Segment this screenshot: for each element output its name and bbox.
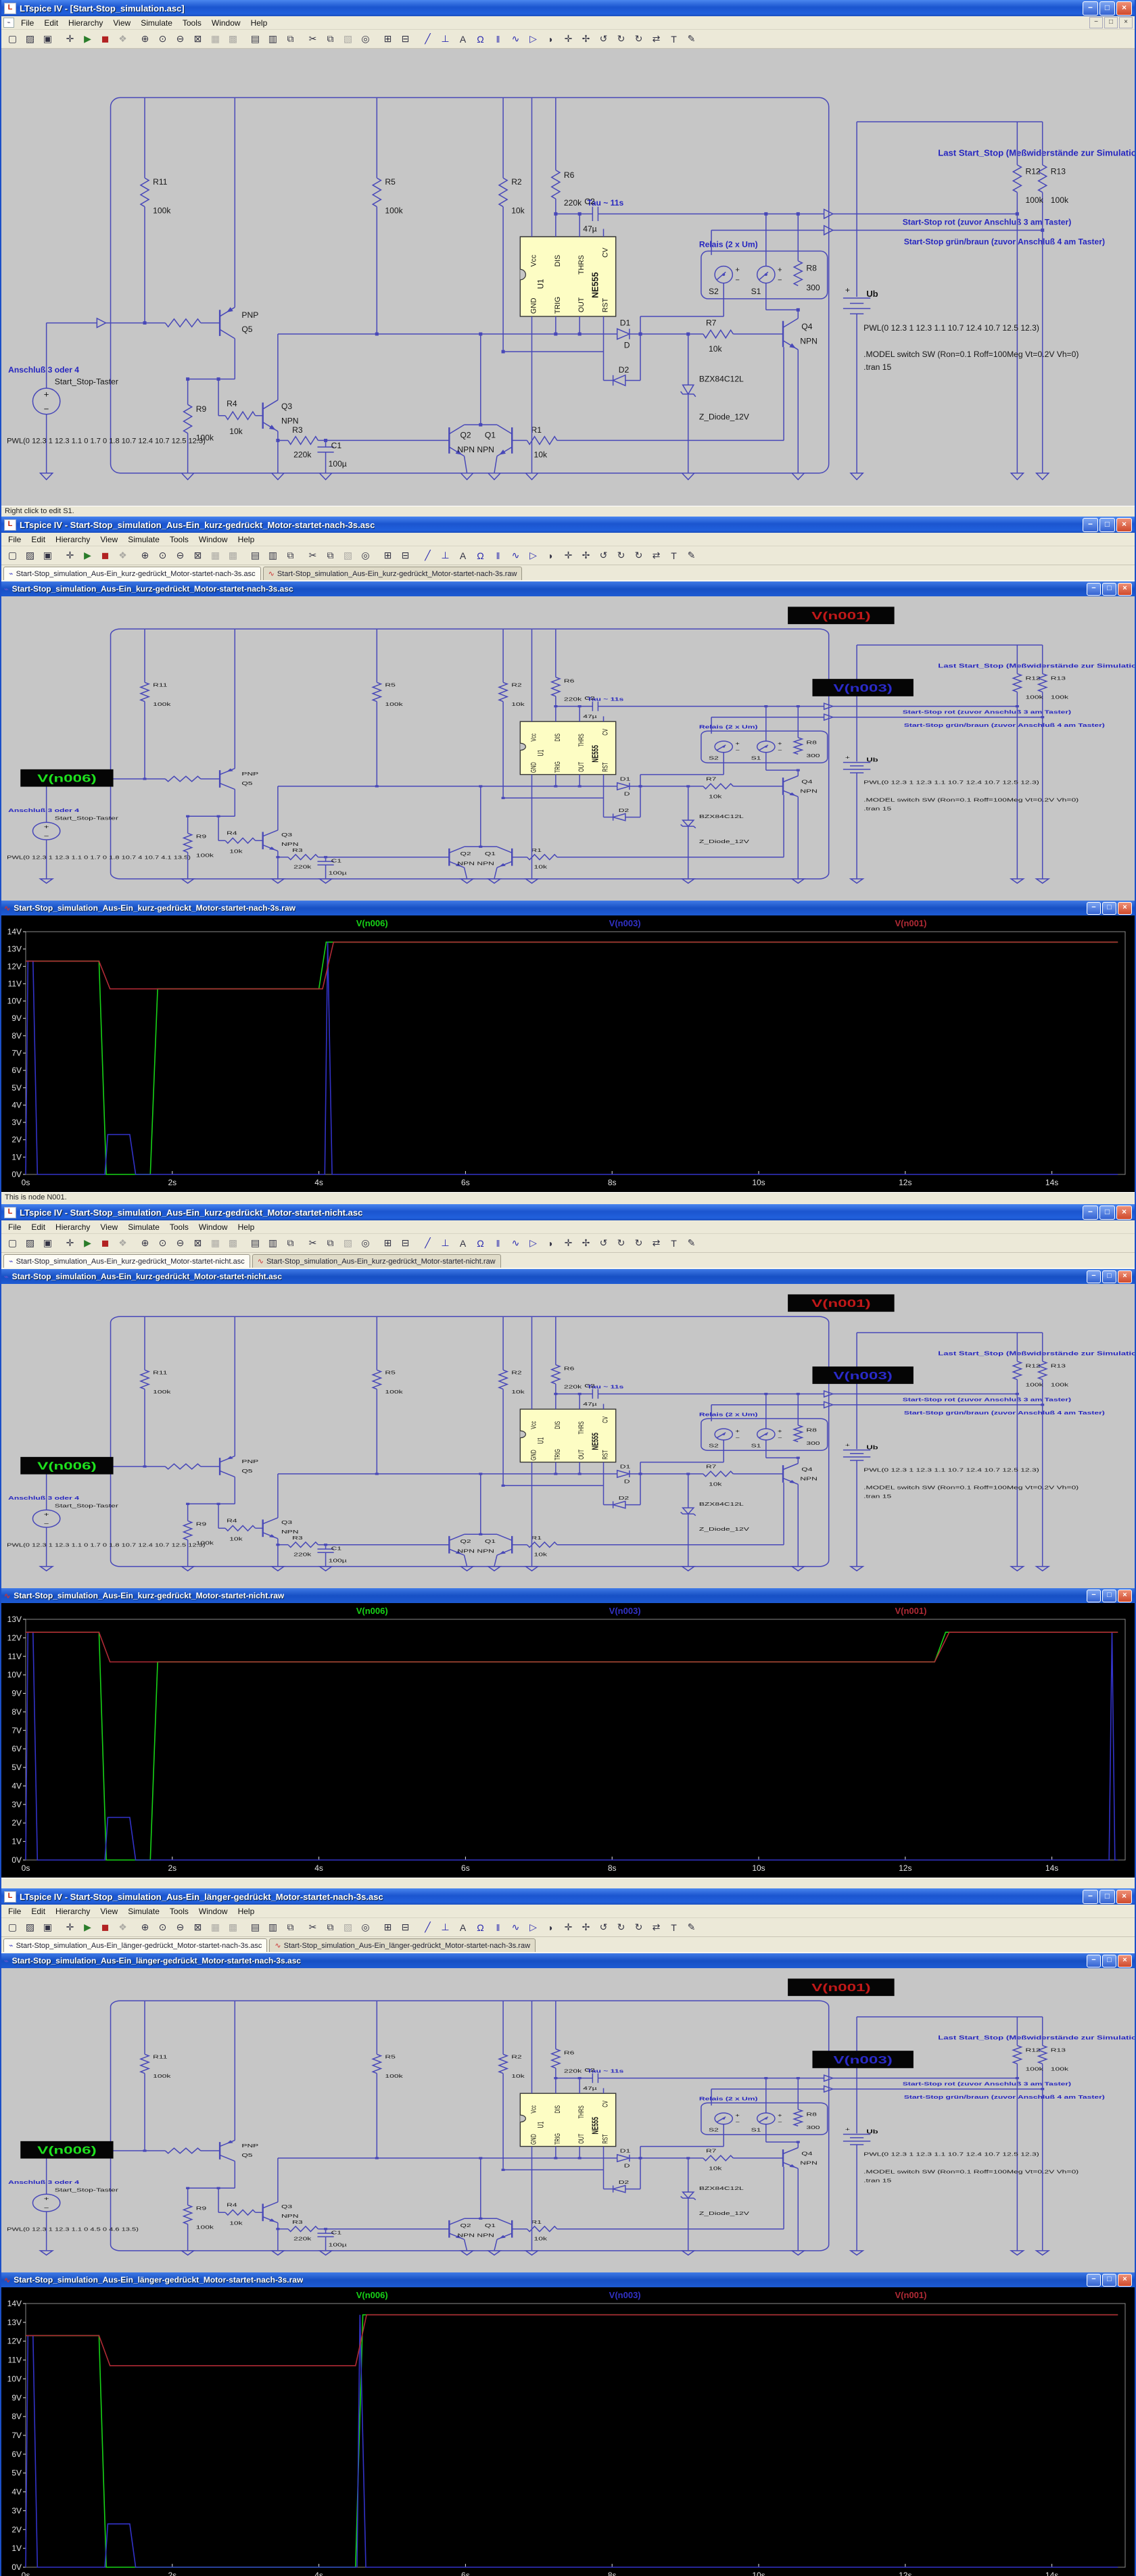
toolbar-tile-vertical-icon[interactable]: ▥	[264, 1919, 281, 1936]
svg-text:C2: C2	[584, 696, 595, 701]
minimize-button[interactable]: −	[1087, 1270, 1101, 1283]
menu-item-window[interactable]: Window	[194, 1221, 233, 1233]
maximize-button[interactable]: □	[1102, 1590, 1116, 1602]
waveform-file-icon: ∿	[4, 904, 10, 913]
toolbar-cascade-icon[interactable]: ⧉	[282, 547, 299, 564]
svg-text:Z_Diode_12V: Z_Diode_12V	[699, 2211, 749, 2216]
toolbar-inductor-icon[interactable]: ∿	[507, 1919, 524, 1936]
waveform-plot[interactable]: 0V1V2V3V4V5V6V7V8V9V10V11V12V13V0s2s4s6s…	[1, 1603, 1135, 1878]
toolbar-halt-icon[interactable]: ◼	[97, 1919, 114, 1936]
toolbar-capacitor-icon[interactable]: ‖	[490, 547, 506, 564]
toolbar-edit-icon[interactable]: ✎	[683, 547, 700, 564]
toolbar-open-icon[interactable]: ▨	[22, 547, 39, 564]
toolbar-tile-vertical-icon[interactable]: ▥	[264, 1235, 281, 1251]
toolbar-capacitor-icon[interactable]: ‖	[490, 1919, 506, 1936]
toolbar-halt-icon[interactable]: ◼	[97, 547, 114, 564]
titlebar-laenger-3s[interactable]: L LTspice IV - Start-Stop_simulation_Aus…	[1, 1888, 1135, 1905]
toolbar-capacitor-icon[interactable]: ‖	[490, 1235, 506, 1251]
menu-item-tools[interactable]: Tools	[165, 1905, 193, 1917]
close-button[interactable]: ×	[1116, 1206, 1132, 1220]
tab-asc[interactable]: ⌁Start-Stop_simulation_Aus-Ein_kurz-gedr…	[3, 567, 261, 580]
toolbar-halt-icon[interactable]: ◼	[97, 1235, 114, 1251]
svg-text:R3: R3	[292, 425, 303, 435]
toolbar-edit-icon[interactable]: ✎	[683, 1919, 700, 1936]
minimize-button[interactable]: −	[1083, 1890, 1098, 1904]
toolbar-wire-icon[interactable]: ╱	[419, 1235, 436, 1251]
toolbar-run-icon[interactable]: ▶	[79, 30, 96, 47]
window-main: L LTspice IV - [Start-Stop_simulation.as…	[0, 0, 1136, 517]
minimize-button[interactable]: −	[1087, 583, 1101, 596]
menu-item-file[interactable]: File	[3, 1221, 26, 1233]
toolbar-tile-horizontal-icon[interactable]: ▤	[247, 1235, 264, 1251]
toolbar-net-label-icon[interactable]: A	[454, 547, 471, 564]
svg-text:Q4: Q4	[801, 779, 813, 784]
toolbar-drag-icon[interactable]: ✢	[577, 1919, 594, 1936]
legend-V(n006)[interactable]: V(n006)	[356, 918, 388, 928]
menu-item-view[interactable]: View	[95, 533, 122, 546]
close-button[interactable]: ×	[1118, 902, 1132, 915]
close-button[interactable]: ×	[1116, 1, 1132, 16]
toolbar-mirror-icon[interactable]: ⇄	[648, 1919, 665, 1936]
tab-raw[interactable]: ∿Start-Stop_simulation_Aus-Ein_länger-ge…	[269, 1938, 536, 1952]
window-controls: −□×	[1087, 1955, 1132, 1967]
toolbar-control-panel-icon[interactable]: ✛	[62, 30, 78, 47]
menu-item-file[interactable]: File	[3, 533, 26, 546]
toolbar-text-icon[interactable]: T	[665, 1235, 682, 1251]
maximize-button[interactable]: □	[1102, 1955, 1116, 1967]
svg-text:10k: 10k	[709, 2166, 723, 2171]
toolbar-grid-dots-icon[interactable]: ▦	[207, 30, 224, 47]
toolbar-component-icon[interactable]: ◗	[542, 1235, 559, 1251]
window-title: LTspice IV - Start-Stop_simulation_Aus-E…	[20, 1208, 362, 1218]
svg-text:D1: D1	[620, 318, 631, 328]
toolbar-save-icon[interactable]: ▣	[39, 1919, 56, 1936]
legend-V(n003)[interactable]: V(n003)	[609, 1606, 641, 1616]
toolbar-wire-icon[interactable]: ╱	[419, 30, 436, 47]
menu-item-hierarchy[interactable]: Hierarchy	[64, 17, 108, 29]
toolbar-mirror-icon[interactable]: ⇄	[648, 547, 665, 564]
toolbar-run-icon[interactable]: ▶	[79, 1919, 96, 1936]
svg-text:14V: 14V	[7, 2299, 22, 2308]
toolbar-mark-unconnected-icon[interactable]: ▩	[224, 30, 241, 47]
svg-text:C1: C1	[331, 858, 342, 863]
close-button[interactable]: ×	[1118, 583, 1132, 596]
toolbar-copy-icon[interactable]: ⧉	[322, 30, 339, 47]
toolbar-zoom-back-icon[interactable]: ⊙	[154, 547, 171, 564]
toolbar-net-label-icon[interactable]: A	[454, 1919, 471, 1936]
toolbar-zoom-back-icon[interactable]: ⊙	[154, 1919, 171, 1936]
svg-text:13V: 13V	[7, 2318, 22, 2327]
toolbar-rotate-icon[interactable]: ↻	[630, 1919, 647, 1936]
toolbar-component-icon[interactable]: ◗	[542, 30, 559, 47]
toolbar-zoom-out-icon[interactable]: ⊖	[172, 1235, 189, 1251]
maximize-button[interactable]: □	[1099, 518, 1115, 532]
maximize-button[interactable]: □	[1099, 1890, 1115, 1904]
toolbar-text-icon[interactable]: T	[665, 547, 682, 564]
toolbar-ground-icon[interactable]: ⊥	[437, 547, 454, 564]
toolbar-component-icon[interactable]: ◗	[542, 1919, 559, 1936]
schematic-file-icon: ⌁	[9, 1257, 14, 1266]
toolbar-pan-icon[interactable]: ❖	[114, 30, 131, 47]
toolbar-diode-icon[interactable]: ▷	[525, 1919, 542, 1936]
toolbar-new-schematic-icon[interactable]: ▢	[4, 1919, 21, 1936]
toolbar-mirror-icon[interactable]: ⇄	[648, 1235, 665, 1251]
close-button[interactable]: ×	[1118, 2274, 1132, 2287]
minimize-button[interactable]: −	[1087, 2274, 1101, 2287]
svg-text:Q4: Q4	[801, 323, 813, 332]
toolbar-move-icon[interactable]: ✛	[560, 1919, 577, 1936]
tab-label: Start-Stop_simulation_Aus-Ein_kurz-gedrü…	[16, 1258, 245, 1266]
svg-text:14s: 14s	[1045, 2571, 1058, 2576]
toolbar-print-icon[interactable]: ⊟	[397, 547, 414, 564]
menu-item-tools[interactable]: Tools	[165, 533, 193, 546]
toolbar-save-icon[interactable]: ▣	[39, 547, 56, 564]
menu-item-hierarchy[interactable]: Hierarchy	[51, 1221, 95, 1233]
close-button[interactable]: ×	[1118, 1955, 1132, 1967]
close-button[interactable]: ×	[1116, 1890, 1132, 1904]
toolbar-wire-icon[interactable]: ╱	[419, 547, 436, 564]
toolbar-print-icon[interactable]: ⊟	[397, 1235, 414, 1251]
toolbar-print-preview-icon[interactable]: ⊞	[379, 1235, 396, 1251]
svg-text:+: +	[44, 824, 49, 830]
toolbar-paste-icon[interactable]: ▧	[339, 547, 356, 564]
toolbar-zoom-in-icon[interactable]: ⊕	[137, 1235, 153, 1251]
maximize-button[interactable]: □	[1099, 1206, 1115, 1220]
toolbar-pan-icon[interactable]: ❖	[114, 1919, 131, 1936]
toolbar-new-schematic-icon[interactable]: ▢	[4, 547, 21, 564]
legend-V(n006)[interactable]: V(n006)	[356, 2290, 388, 2300]
menu-item-hierarchy[interactable]: Hierarchy	[51, 533, 95, 546]
toolbar-zoom-out-icon[interactable]: ⊖	[172, 547, 189, 564]
toolbar-mark-unconnected-icon[interactable]: ▩	[224, 1235, 241, 1251]
toolbar-tile-horizontal-icon[interactable]: ▤	[247, 1919, 264, 1936]
toolbar-text-icon[interactable]: T	[665, 1919, 682, 1936]
toolbar-edit-icon[interactable]: ✎	[683, 30, 700, 47]
menu-item-help[interactable]: Help	[233, 1905, 260, 1917]
svg-text:R5: R5	[385, 683, 396, 688]
child-titlebar-schematic[interactable]: ⌁ Start-Stop_simulation_Aus-Ein_kurz-ged…	[1, 581, 1135, 596]
titlebar-kurz-nicht[interactable]: L LTspice IV - Start-Stop_simulation_Aus…	[1, 1204, 1135, 1220]
toolbar-cascade-icon[interactable]: ⧉	[282, 1235, 299, 1251]
toolbar-cut-icon[interactable]: ✂	[304, 1919, 321, 1936]
svg-text:CV: CV	[601, 728, 609, 735]
toolbar-halt-icon[interactable]: ◼	[97, 30, 114, 47]
menu-item-simulate[interactable]: Simulate	[123, 533, 164, 546]
toolbar-find-icon[interactable]: ◎	[357, 1235, 374, 1251]
svg-text:TRIG: TRIG	[553, 761, 561, 773]
legend-V(n003)[interactable]: V(n003)	[609, 2290, 641, 2300]
svg-text:9V: 9V	[11, 1013, 22, 1023]
toolbar-zoom-full-extents-icon[interactable]: ⊠	[189, 547, 206, 564]
toolbar-zoom-full-extents-icon[interactable]: ⊠	[189, 1235, 206, 1251]
toolbar-tile-horizontal-icon[interactable]: ▤	[247, 547, 264, 564]
minimize-button[interactable]: −	[1087, 1955, 1101, 1967]
tab-raw[interactable]: ∿Start-Stop_simulation_Aus-Ein_kurz-gedr…	[263, 567, 523, 580]
toolbar-control-panel-icon[interactable]: ✛	[62, 547, 78, 564]
toolbar-zoom-full-extents-icon[interactable]: ⊠	[189, 1919, 206, 1936]
close-button[interactable]: ×	[1118, 1270, 1132, 1283]
toolbar-mirror-icon[interactable]: ⇄	[648, 30, 665, 47]
toolbar-pan-icon[interactable]: ❖	[114, 1235, 131, 1251]
toolbar-print-preview-icon[interactable]: ⊞	[379, 547, 396, 564]
child-close-button[interactable]: ×	[1119, 17, 1133, 28]
menu-item-simulate[interactable]: Simulate	[123, 1905, 164, 1917]
svg-text:C2: C2	[584, 2068, 595, 2073]
legend-V(n001)[interactable]: V(n001)	[895, 1606, 926, 1616]
minimize-button[interactable]: −	[1083, 1, 1098, 16]
menu-item-simulate[interactable]: Simulate	[123, 1221, 164, 1233]
toolbar-inductor-icon[interactable]: ∿	[507, 30, 524, 47]
legend-V(n001)[interactable]: V(n001)	[895, 918, 926, 928]
toolbar-redo-icon[interactable]: ↻	[613, 30, 630, 47]
schematic-canvas[interactable]: +−Anschluß 3 oder 4Start_Stop-TasterPWL(…	[1, 596, 1135, 901]
toolbar-resistor-icon[interactable]: Ω	[472, 547, 489, 564]
child-titlebar-waveform[interactable]: ∿ Start-Stop_simulation_Aus-Ein_kurz-ged…	[1, 901, 1135, 915]
toolbar-capacitor-icon[interactable]: ‖	[490, 30, 506, 47]
svg-text:Q5: Q5	[241, 325, 253, 334]
menu-item-view[interactable]: View	[95, 1221, 122, 1233]
tab-asc[interactable]: ⌁Start-Stop_simulation_Aus-Ein_kurz-gedr…	[3, 1254, 250, 1268]
titlebar-main[interactable]: L LTspice IV - [Start-Stop_simulation.as…	[1, 0, 1135, 16]
menu-item-file[interactable]: File	[3, 1905, 26, 1917]
tab-asc[interactable]: ⌁Start-Stop_simulation_Aus-Ein_länger-ge…	[3, 1938, 267, 1952]
toolbar-ground-icon[interactable]: ⊥	[437, 1919, 454, 1936]
waveform-plot[interactable]: 0V1V2V3V4V5V6V7V8V9V10V11V12V13V14V0s2s4…	[1, 2287, 1135, 2576]
toolbar-cascade-icon[interactable]: ⧉	[282, 30, 299, 47]
ltspice-app-icon: L	[4, 3, 16, 14]
menu-item-simulate[interactable]: Simulate	[136, 17, 177, 29]
menu-item-window[interactable]: Window	[207, 17, 245, 29]
menu-item-window[interactable]: Window	[194, 1905, 233, 1917]
toolbar-tile-vertical-icon[interactable]: ▥	[264, 547, 281, 564]
svg-text:8V: 8V	[11, 2412, 22, 2421]
tab-raw[interactable]: ∿Start-Stop_simulation_Aus-Ein_kurz-gedr…	[252, 1254, 501, 1268]
toolbar-drag-icon[interactable]: ✢	[577, 547, 594, 564]
toolbar-paste-icon[interactable]: ▧	[339, 30, 356, 47]
toolbar-diode-icon[interactable]: ▷	[525, 547, 542, 564]
toolbar-inductor-icon[interactable]: ∿	[507, 547, 524, 564]
toolbar-copy-icon[interactable]: ⧉	[322, 547, 339, 564]
toolbar-zoom-full-extents-icon[interactable]: ⊠	[189, 30, 206, 47]
child-minimize-button[interactable]: −	[1089, 17, 1103, 28]
legend-V(n003)[interactable]: V(n003)	[609, 918, 641, 928]
toolbar-paste-icon[interactable]: ▧	[339, 1235, 356, 1251]
toolbar-print-preview-icon[interactable]: ⊞	[379, 30, 396, 47]
toolbar-copy-icon[interactable]: ⧉	[322, 1235, 339, 1251]
toolbar-paste-icon[interactable]: ▧	[339, 1919, 356, 1936]
toolbar-mark-unconnected-icon[interactable]: ▩	[224, 547, 241, 564]
toolbar-undo-icon[interactable]: ↺	[595, 1919, 612, 1936]
svg-text:3V: 3V	[11, 1118, 22, 1127]
toolbar-redo-icon[interactable]: ↻	[613, 547, 630, 564]
toolbar-text-icon[interactable]: T	[665, 30, 682, 47]
toolbar-ground-icon[interactable]: ⊥	[437, 1235, 454, 1251]
toolbar-pan-icon[interactable]: ❖	[114, 547, 131, 564]
toolbar-find-icon[interactable]: ◎	[357, 547, 374, 564]
toolbar-zoom-back-icon[interactable]: ⊙	[154, 1235, 171, 1251]
toolbar-save-icon[interactable]: ▣	[39, 1235, 56, 1251]
svg-text:NPN: NPN	[800, 788, 818, 794]
toolbar-zoom-in-icon[interactable]: ⊕	[137, 30, 153, 47]
minimize-button[interactable]: −	[1083, 518, 1098, 532]
toolbar-redo-icon[interactable]: ↻	[613, 1919, 630, 1936]
svg-text:47µ: 47µ	[583, 1402, 597, 1407]
toolbar: ▢▨▣✛▶◼❖⊕⊙⊖⊠▦▩▤▥⧉✂⧉▧◎⊞⊟╱⊥AΩ‖∿▷◗✛✢↺↻↻⇄T✎	[1, 1234, 1135, 1253]
toolbar-new-schematic-icon[interactable]: ▢	[4, 1235, 21, 1251]
toolbar-move-icon[interactable]: ✛	[560, 30, 577, 47]
toolbar-run-icon[interactable]: ▶	[79, 547, 96, 564]
menu-item-help[interactable]: Help	[233, 1221, 260, 1233]
toolbar-wire-icon[interactable]: ╱	[419, 1919, 436, 1936]
maximize-button[interactable]: □	[1102, 1270, 1116, 1283]
toolbar-rotate-icon[interactable]: ↻	[630, 1235, 647, 1251]
toolbar-component-icon[interactable]: ◗	[542, 547, 559, 564]
toolbar-cascade-icon[interactable]: ⧉	[282, 1919, 299, 1936]
menu-item-edit[interactable]: Edit	[26, 1905, 50, 1917]
legend-V(n006)[interactable]: V(n006)	[356, 1606, 388, 1616]
minimize-button[interactable]: −	[1087, 1590, 1101, 1602]
toolbar-cut-icon[interactable]: ✂	[304, 30, 321, 47]
legend-V(n001)[interactable]: V(n001)	[895, 2290, 926, 2300]
toolbar-zoom-in-icon[interactable]: ⊕	[137, 547, 153, 564]
child-titlebar-waveform[interactable]: ∿ Start-Stop_simulation_Aus-Ein_kurz-ged…	[1, 1588, 1135, 1603]
toolbar-cut-icon[interactable]: ✂	[304, 547, 321, 564]
toolbar-find-icon[interactable]: ◎	[357, 1919, 374, 1936]
menu-item-file[interactable]: File	[16, 17, 39, 29]
toolbar-tile-horizontal-icon[interactable]: ▤	[247, 30, 264, 47]
toolbar-resistor-icon[interactable]: Ω	[472, 1235, 489, 1251]
menu-item-view[interactable]: View	[95, 1905, 122, 1917]
toolbar-print-icon[interactable]: ⊟	[397, 1919, 414, 1936]
toolbar-zoom-in-icon[interactable]: ⊕	[137, 1919, 153, 1936]
svg-text:C1: C1	[331, 1546, 342, 1551]
toolbar-move-icon[interactable]: ✛	[560, 547, 577, 564]
toolbar-redo-icon[interactable]: ↻	[613, 1235, 630, 1251]
svg-text:5V: 5V	[11, 1083, 22, 1093]
svg-text:Vcc: Vcc	[529, 254, 538, 266]
toolbar-tile-vertical-icon[interactable]: ▥	[264, 30, 281, 47]
minimize-button[interactable]: −	[1087, 902, 1101, 915]
close-button[interactable]: ×	[1118, 1590, 1132, 1602]
maximize-button[interactable]: □	[1102, 2274, 1116, 2287]
svg-text:Q1: Q1	[485, 2223, 496, 2228]
toolbar-new-schematic-icon[interactable]: ▢	[4, 30, 21, 47]
toolbar-grid-dots-icon[interactable]: ▦	[207, 1235, 224, 1251]
toolbar-edit-icon[interactable]: ✎	[683, 1235, 700, 1251]
toolbar-rotate-icon[interactable]: ↻	[630, 547, 647, 564]
svg-text:D1: D1	[620, 2148, 631, 2153]
toolbar-open-icon[interactable]: ▨	[22, 30, 39, 47]
toolbar-open-icon[interactable]: ▨	[22, 1235, 39, 1251]
waveform-plot[interactable]: 0V1V2V3V4V5V6V7V8V9V10V11V12V13V14V0s2s4…	[1, 915, 1135, 1192]
toolbar-open-icon[interactable]: ▨	[22, 1919, 39, 1936]
svg-text:Q3: Q3	[281, 2204, 293, 2210]
toolbar-move-icon[interactable]: ✛	[560, 1235, 577, 1251]
svg-text:10V: 10V	[7, 2374, 22, 2383]
toolbar-print-icon[interactable]: ⊟	[397, 30, 414, 47]
svg-text:12V: 12V	[7, 2337, 22, 2346]
close-button[interactable]: ×	[1116, 518, 1132, 532]
toolbar-undo-icon[interactable]: ↺	[595, 1235, 612, 1251]
toolbar-zoom-back-icon[interactable]: ⊙	[154, 30, 171, 47]
svg-text:0V: 0V	[11, 1855, 22, 1865]
maximize-button[interactable]: □	[1102, 902, 1116, 915]
toolbar-print-preview-icon[interactable]: ⊞	[379, 1919, 396, 1936]
svg-text:R8: R8	[806, 740, 817, 745]
toolbar-zoom-out-icon[interactable]: ⊖	[172, 30, 189, 47]
toolbar-cut-icon[interactable]: ✂	[304, 1235, 321, 1251]
toolbar-drag-icon[interactable]: ✢	[577, 1235, 594, 1251]
toolbar-copy-icon[interactable]: ⧉	[322, 1919, 339, 1936]
child-maximize-button[interactable]: □	[1104, 17, 1118, 28]
menu-item-window[interactable]: Window	[194, 533, 233, 546]
child-titlebar-schematic[interactable]: ⌁ Start-Stop_simulation_Aus-Ein_länger-g…	[1, 1953, 1135, 1968]
toolbar-rotate-icon[interactable]: ↻	[630, 30, 647, 47]
toolbar-drag-icon[interactable]: ✢	[577, 30, 594, 47]
child-titlebar-schematic[interactable]: ⌁ Start-Stop_simulation_Aus-Ein_kurz-ged…	[1, 1269, 1135, 1284]
svg-text:THRS: THRS	[577, 1421, 586, 1434]
menu-item-edit[interactable]: Edit	[26, 533, 50, 546]
toolbar-net-label-icon[interactable]: A	[454, 30, 471, 47]
schematic-canvas[interactable]: +−Anschluß 3 oder 4Start_Stop-TasterPWL(…	[1, 1968, 1135, 2272]
ltspice-app-icon: L	[4, 519, 16, 531]
toolbar-control-panel-icon[interactable]: ✛	[62, 1919, 78, 1936]
menu-item-view[interactable]: View	[108, 17, 135, 29]
toolbar-net-label-icon[interactable]: A	[454, 1235, 471, 1251]
toolbar-run-icon[interactable]: ▶	[79, 1235, 96, 1251]
schematic-canvas[interactable]: +−Anschluß 3 oder 4Start_Stop-TasterPWL(…	[1, 49, 1135, 506]
toolbar-resistor-icon[interactable]: Ω	[472, 30, 489, 47]
toolbar-grid-dots-icon[interactable]: ▦	[207, 547, 224, 564]
toolbar-grid-dots-icon[interactable]: ▦	[207, 1919, 224, 1936]
toolbar-undo-icon[interactable]: ↺	[595, 547, 612, 564]
child-titlebar-waveform[interactable]: ∿ Start-Stop_simulation_Aus-Ein_länger-g…	[1, 2272, 1135, 2287]
titlebar-kurz-3s[interactable]: L LTspice IV - Start-Stop_simulation_Aus…	[1, 517, 1135, 533]
svg-text:0s: 0s	[22, 1863, 30, 1873]
menu-item-tools[interactable]: Tools	[165, 1221, 193, 1233]
toolbar-resistor-icon[interactable]: Ω	[472, 1919, 489, 1936]
toolbar-zoom-out-icon[interactable]: ⊖	[172, 1919, 189, 1936]
svg-text:PWL(0 12.3 1 12.3 1.1 0 4.5 0: PWL(0 12.3 1 12.3 1.1 0 4.5 0 4.6 13.5)	[7, 2226, 139, 2232]
menu-item-tools[interactable]: Tools	[178, 17, 206, 29]
tab-label: Start-Stop_simulation_Aus-Ein_länger-ged…	[284, 1942, 530, 1950]
svg-text:8V: 8V	[11, 1031, 22, 1041]
toolbar-ground-icon[interactable]: ⊥	[437, 30, 454, 47]
svg-text:NE555: NE555	[591, 2117, 600, 2134]
menu-item-help[interactable]: Help	[246, 17, 273, 29]
toolbar-inductor-icon[interactable]: ∿	[507, 1235, 524, 1251]
svg-text:THRS: THRS	[577, 2105, 586, 2118]
minimize-button[interactable]: −	[1083, 1206, 1098, 1220]
menubar: ⌁FileEditHierarchyViewSimulateToolsWindo…	[1, 16, 1135, 30]
maximize-button[interactable]: □	[1102, 583, 1116, 596]
toolbar-control-panel-icon[interactable]: ✛	[62, 1235, 78, 1251]
toolbar-save-icon[interactable]: ▣	[39, 30, 56, 47]
svg-text:THRS: THRS	[577, 734, 586, 746]
toolbar-mark-unconnected-icon[interactable]: ▩	[224, 1919, 241, 1936]
toolbar-diode-icon[interactable]: ▷	[525, 30, 542, 47]
svg-text:NE555: NE555	[591, 745, 600, 763]
toolbar-find-icon[interactable]: ◎	[357, 30, 374, 47]
menu-item-hierarchy[interactable]: Hierarchy	[51, 1905, 95, 1917]
toolbar-undo-icon[interactable]: ↺	[595, 30, 612, 47]
menu-item-edit[interactable]: Edit	[39, 17, 63, 29]
schematic-canvas[interactable]: +−Anschluß 3 oder 4Start_Stop-TasterPWL(…	[1, 1284, 1135, 1588]
menu-item-help[interactable]: Help	[233, 533, 260, 546]
menu-item-edit[interactable]: Edit	[26, 1221, 50, 1233]
maximize-button[interactable]: □	[1099, 1, 1115, 16]
toolbar-diode-icon[interactable]: ▷	[525, 1235, 542, 1251]
